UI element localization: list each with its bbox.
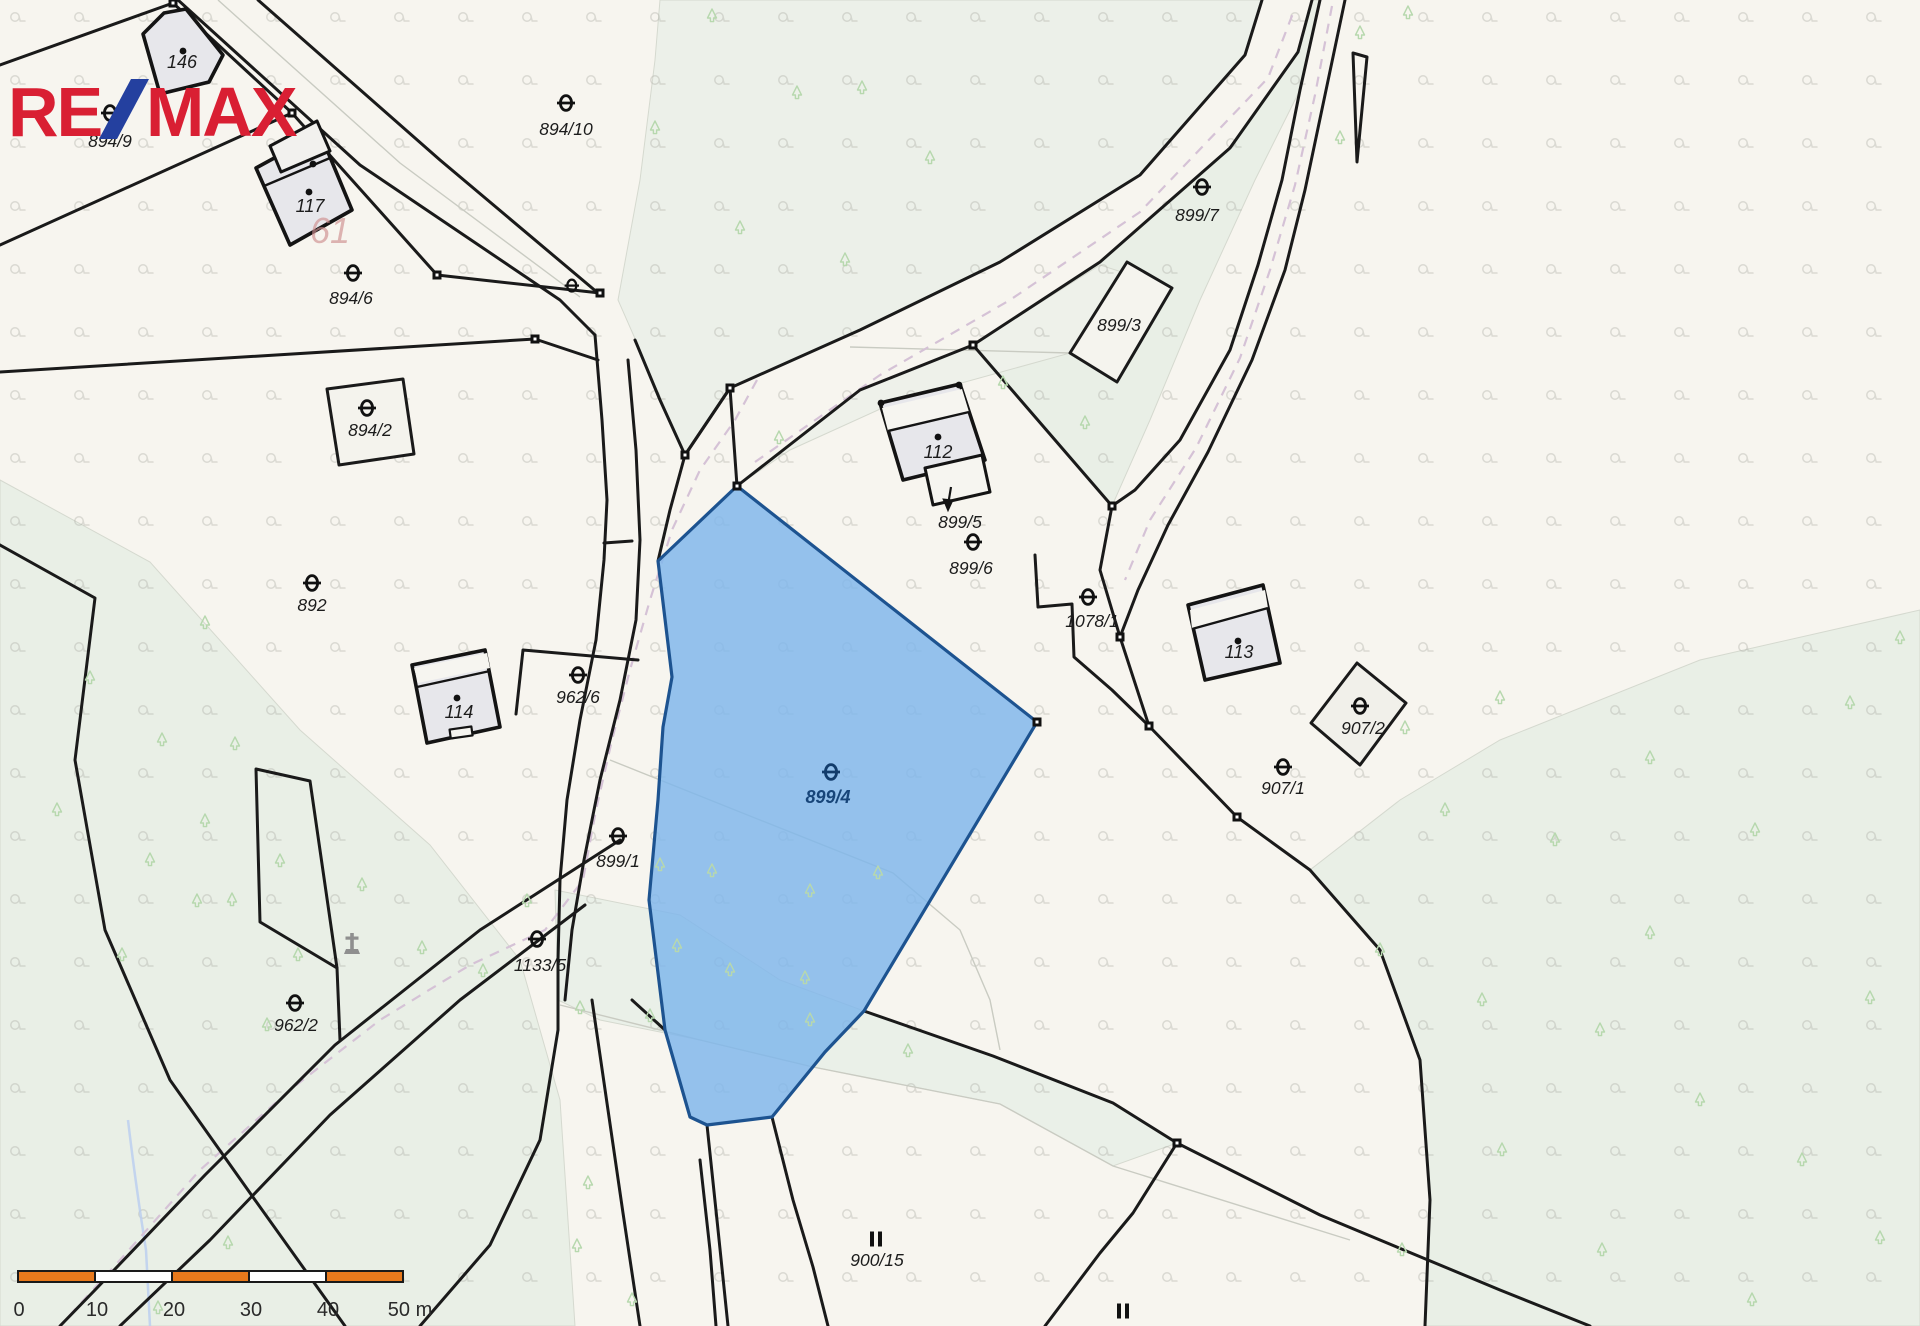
parcel-label-899-5: 899/5	[938, 512, 982, 532]
scale-bar-label: 0	[13, 1299, 24, 1321]
scale-bar-segment	[172, 1271, 249, 1282]
parcel-label-899-6: 899/6	[949, 558, 993, 578]
scale-bar-label: 50 m	[388, 1299, 432, 1321]
building-dot	[956, 382, 963, 389]
scale-bar-segment	[18, 1271, 95, 1282]
building-dot	[878, 400, 885, 407]
territory-number-faded: 61	[310, 210, 350, 251]
scale-bar-segment	[326, 1271, 403, 1282]
parcel-label-962-6: 962/6	[556, 687, 600, 707]
remax-logo-max: MAX	[146, 73, 298, 151]
parcel-label-894-10: 894/10	[539, 119, 593, 139]
building-dot	[306, 189, 313, 196]
scale-bar-segment	[95, 1271, 172, 1282]
parcel-label-113: 113	[1225, 642, 1254, 662]
parcel-label-907-1: 907/1	[1261, 778, 1305, 798]
parcel-label-112: 112	[924, 442, 953, 462]
scale-bar-label: 40	[317, 1299, 339, 1321]
parcel-label-894-6: 894/6	[329, 288, 373, 308]
cadastral-map: 61894/9146894/10117894/6894/2892114962/6…	[0, 0, 1920, 1326]
parcel-label-900-15: 900/15	[850, 1250, 904, 1270]
remax-logo-re: RE	[8, 73, 101, 151]
parcel-label-894-2: 894/2	[348, 420, 392, 440]
parcel-label-117: 117	[296, 196, 326, 216]
scale-bar-label: 30	[240, 1299, 262, 1321]
scale-bar-segment	[249, 1271, 326, 1282]
scale-bar-label: 20	[163, 1299, 185, 1321]
parcel-label-1133-5: 1133/5	[514, 955, 566, 975]
parcel-label-899-4: 899/4	[805, 787, 850, 807]
building-dot	[310, 161, 317, 168]
parcel-label-114: 114	[445, 702, 474, 722]
building-dot	[935, 434, 942, 441]
parcel-label-899-3: 899/3	[1097, 315, 1141, 335]
parcel-label-892: 892	[297, 595, 326, 615]
parcel-label-1078-1: 1078/1	[1065, 611, 1119, 631]
parcel-label-962-2: 962/2	[274, 1015, 318, 1035]
remax-logo: RE MAX	[8, 73, 298, 151]
parcel-label-899-1: 899/1	[596, 851, 640, 871]
parcel-label-146: 146	[167, 52, 198, 72]
parcel-label-907-2: 907/2	[1341, 718, 1385, 738]
cadastral-map-screenshot: 61894/9146894/10117894/6894/2892114962/6…	[0, 0, 1920, 1326]
scale-bar-label: 10	[86, 1299, 108, 1321]
parcel-label-899-7: 899/7	[1175, 205, 1220, 225]
building-dot	[454, 695, 461, 702]
